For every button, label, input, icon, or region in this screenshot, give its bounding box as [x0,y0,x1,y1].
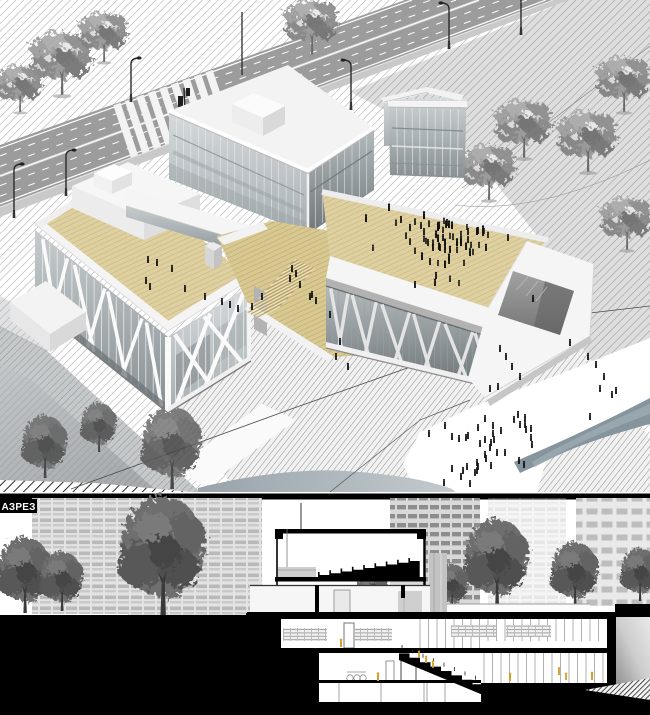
svg-text:АЗРЕЗ: АЗРЕЗ [2,502,36,513]
